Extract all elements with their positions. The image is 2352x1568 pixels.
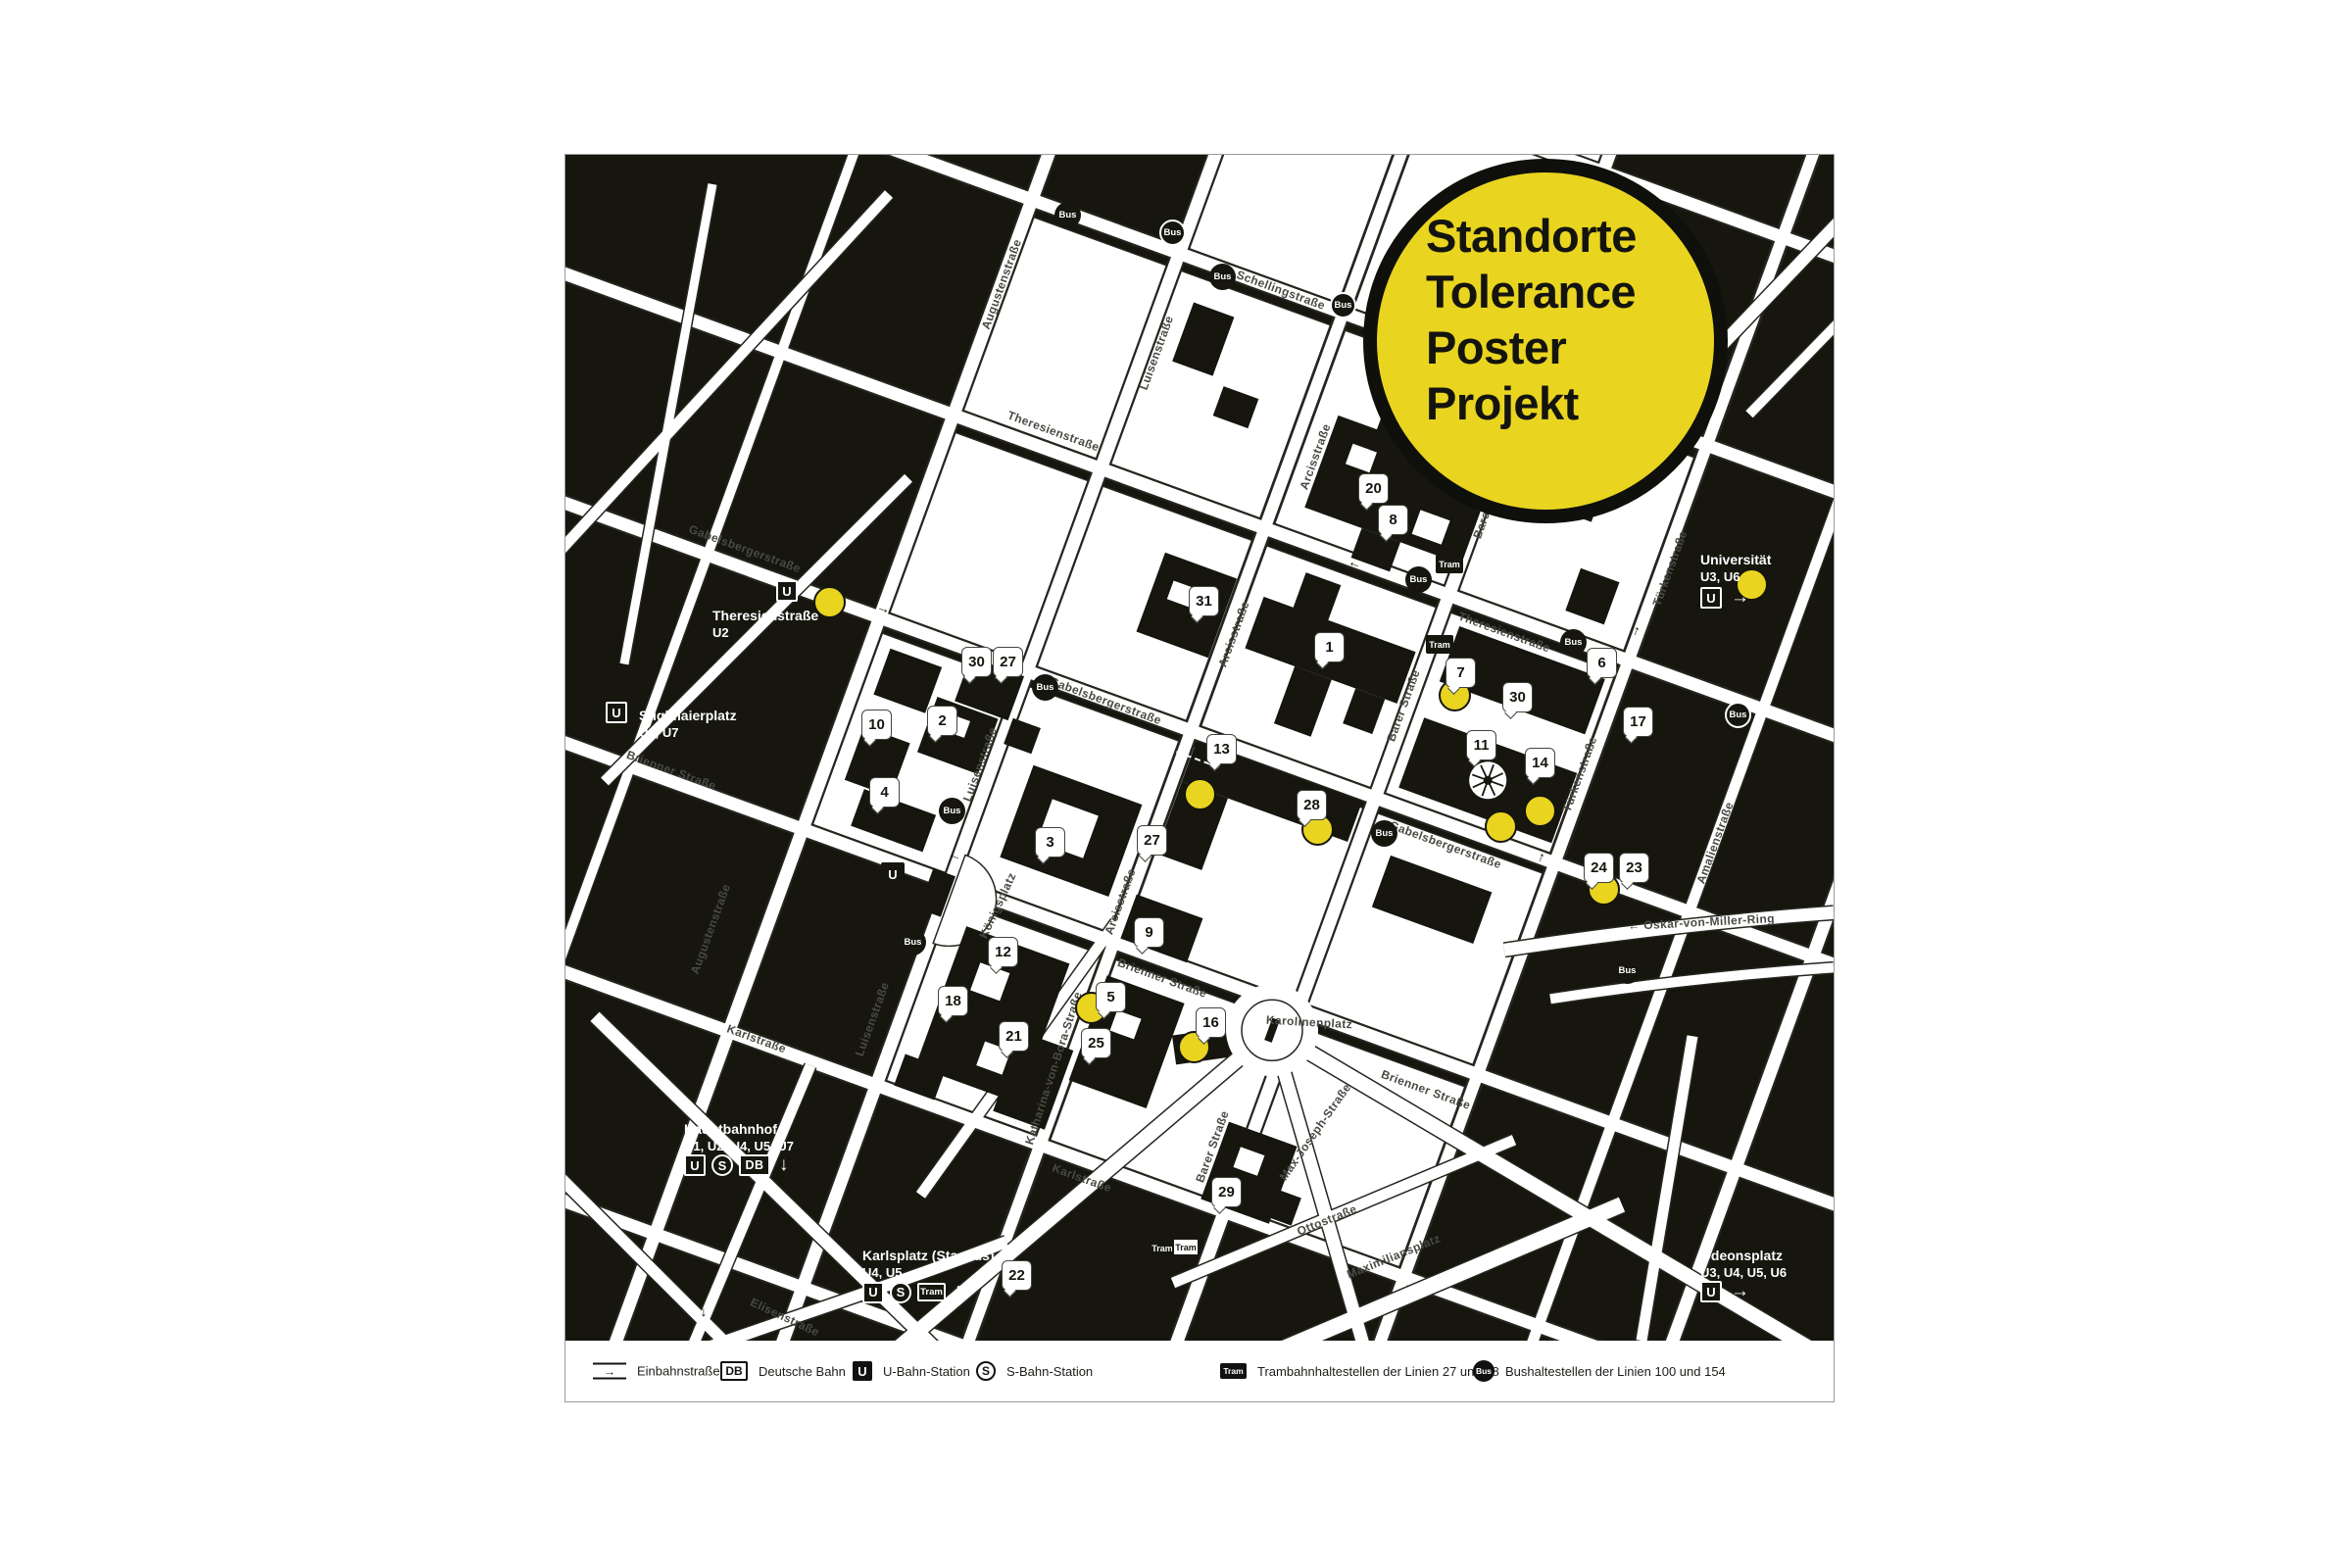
s-icon: S: [976, 1361, 996, 1381]
legend-label: Bushaltestellen der Linien 100 und 154: [1505, 1364, 1726, 1379]
legend-item: UU-Bahn-Station: [853, 1361, 970, 1381]
u-icon: U: [853, 1361, 872, 1381]
title-line: Standorte: [1426, 208, 1637, 264]
karolinenplatz-roundabout: [1226, 984, 1318, 1076]
legend-label: Einbahnstraße: [637, 1364, 720, 1379]
legend-item: DBDeutsche Bahn: [720, 1361, 846, 1381]
legend-label: Trambahnhaltestellen der Linien 27 und 2…: [1257, 1364, 1499, 1379]
legend-item: TramTrambahnhaltestellen der Linien 27 u…: [1220, 1363, 1499, 1379]
title-line: Projekt: [1426, 375, 1579, 431]
legend-label: Deutsche Bahn: [759, 1364, 846, 1379]
legend-item: SS-Bahn-Station: [976, 1361, 1093, 1381]
tram-icon: Tram: [1220, 1363, 1247, 1379]
db-icon: DB: [720, 1361, 748, 1381]
legend-item: BusBushaltestellen der Linien 100 und 15…: [1473, 1360, 1726, 1382]
poster-title-circle: StandorteTolerancePosterProjekt: [1363, 159, 1728, 523]
bus-icon: Bus: [1473, 1360, 1494, 1382]
map-poster: →EinbahnstraßeDBDeutsche BahnUU-Bahn-Sta…: [564, 154, 1835, 1402]
title-line: Tolerance: [1426, 264, 1636, 319]
legend-label: S-Bahn-Station: [1006, 1364, 1093, 1379]
legend-item: →Einbahnstraße: [593, 1363, 720, 1380]
title-line: Poster: [1426, 319, 1566, 375]
one-way-street-icon: →: [593, 1363, 626, 1380]
legend-bar: →EinbahnstraßeDBDeutsche BahnUU-Bahn-Sta…: [565, 1341, 1834, 1401]
legend-label: U-Bahn-Station: [883, 1364, 970, 1379]
